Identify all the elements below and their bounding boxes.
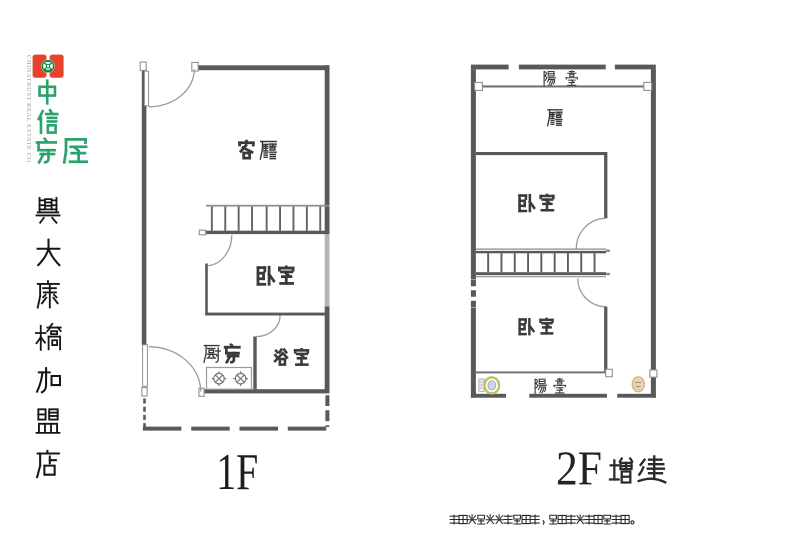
svg-text:2F: 2F (556, 441, 602, 496)
svg-text:CHINATRUST REAL ESTATE CO.: CHINATRUST REAL ESTATE CO. (25, 55, 32, 165)
svg-text:1F: 1F (216, 444, 258, 501)
